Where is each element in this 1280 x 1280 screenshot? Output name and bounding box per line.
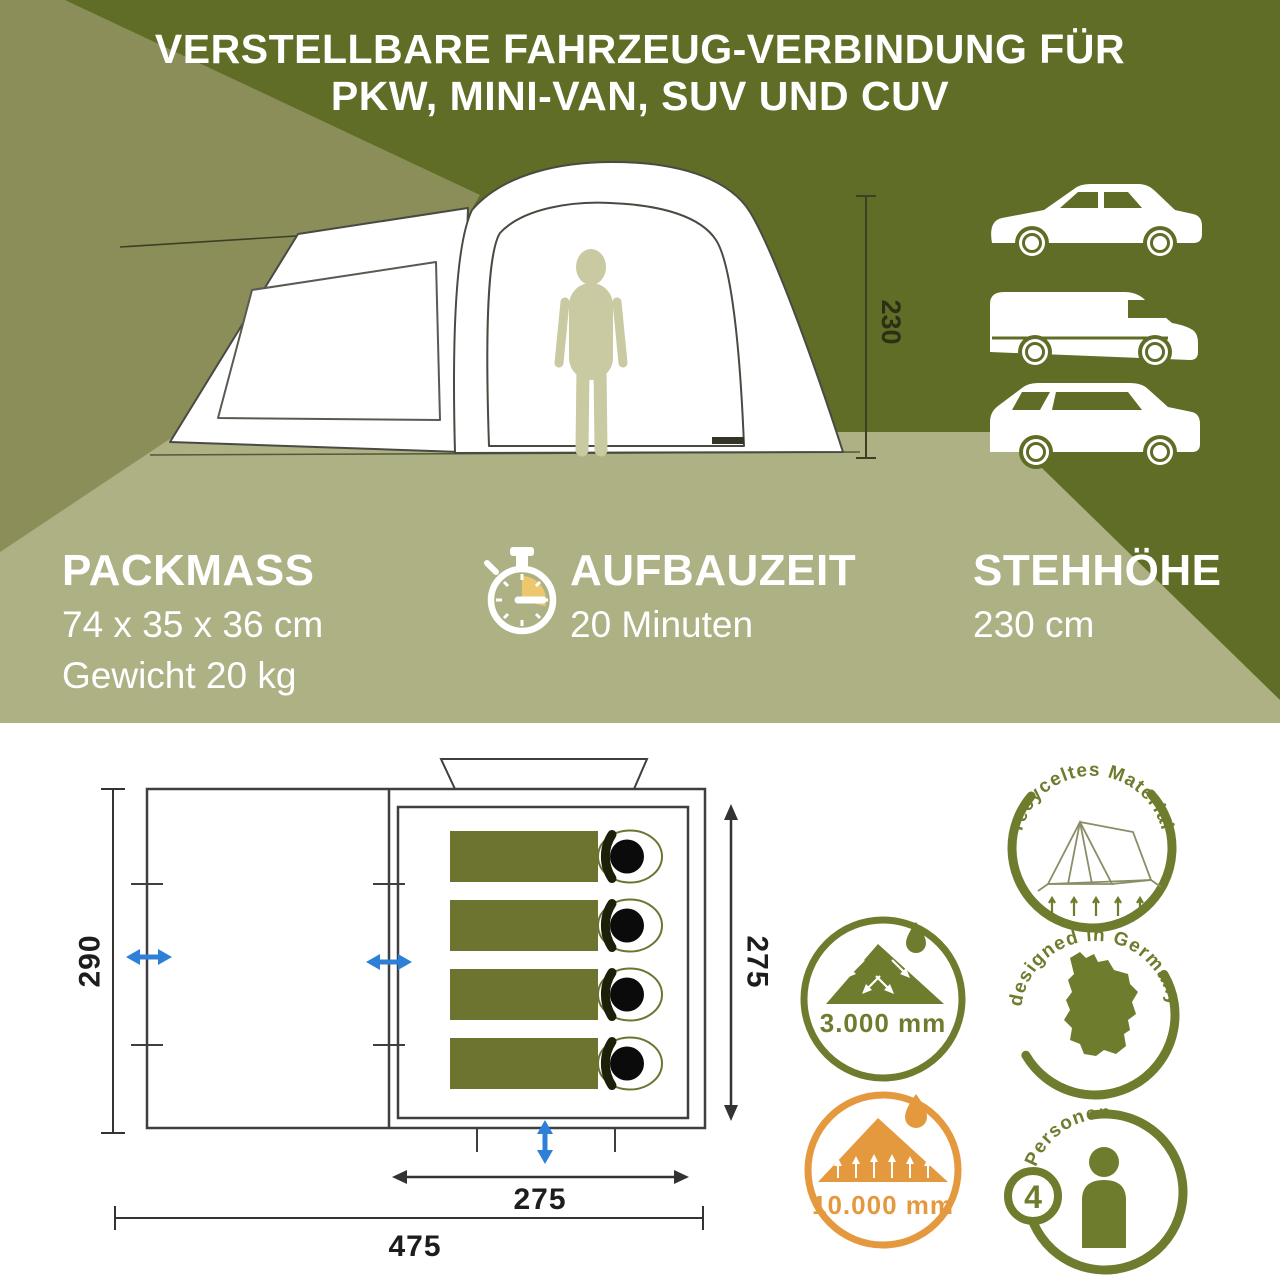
height-dimension-label: 230 bbox=[876, 299, 906, 344]
car-icon bbox=[991, 184, 1202, 260]
page-title-line1: VERSTELLBARE FAHRZEUG-VERBINDUNG FÜR bbox=[0, 26, 1280, 72]
tent-door-sill bbox=[712, 437, 744, 444]
badge-waterproof-3000: 3.000 mm bbox=[804, 920, 962, 1078]
suv-icon bbox=[990, 383, 1200, 469]
height-dimension-line bbox=[856, 196, 876, 458]
vehicle-tunnel-shape bbox=[441, 759, 647, 789]
floor-plan: 290 275 275 475 bbox=[74, 759, 774, 1263]
door-arrow-bottom bbox=[537, 1120, 553, 1164]
aufbauzeit-heading: AUFBAUZEIT bbox=[570, 549, 856, 593]
badge-recycled-label: recyceltes Material bbox=[1006, 760, 1177, 833]
badge-rain-value: 3.000 mm bbox=[820, 1008, 947, 1038]
aufbauzeit-value: 20 Minuten bbox=[570, 604, 753, 646]
svg-text:recyceltes Material: recyceltes Material bbox=[1006, 760, 1177, 833]
sleeping-bag bbox=[450, 969, 662, 1021]
badge-persons: Personen 4 bbox=[1008, 1102, 1193, 1280]
stehhoehe-heading: STEHHÖHE bbox=[973, 549, 1221, 593]
badge-floor-value: 10.000 mm bbox=[812, 1190, 954, 1220]
dim-label-275-bottom: 275 bbox=[513, 1183, 566, 1216]
badge-designed-in-germany: designed in Germany bbox=[986, 906, 1205, 1125]
packmass-dimensions: 74 x 35 x 36 cm bbox=[62, 604, 323, 646]
dim-line-475 bbox=[115, 1206, 703, 1230]
tent-stakes-icon bbox=[1049, 898, 1143, 916]
badge-waterproof-floor-10000: 10.000 mm bbox=[808, 1094, 958, 1245]
stehhoehe-value: 230 cm bbox=[973, 604, 1094, 646]
page-title-line2: PKW, MINI-VAN, SUV UND CUV bbox=[0, 73, 1280, 119]
packmass-heading: PACKMASS bbox=[62, 549, 315, 593]
packmass-weight: Gewicht 20 kg bbox=[62, 655, 296, 697]
dim-line-275-bottom bbox=[392, 1170, 689, 1184]
hero-section: 230 bbox=[0, 0, 1280, 723]
floorplan-artwork: 290 275 275 475 bbox=[0, 723, 1280, 1280]
sleeping-bags bbox=[450, 831, 662, 1090]
sleeping-bag bbox=[450, 831, 662, 883]
van-icon bbox=[990, 292, 1198, 369]
sleeping-bag bbox=[450, 900, 662, 952]
mountain-icon bbox=[826, 944, 944, 1004]
dim-line-275-right bbox=[724, 804, 738, 1121]
door-arrow-left bbox=[126, 949, 172, 965]
person-icon bbox=[1082, 1147, 1126, 1248]
sleeping-bag bbox=[450, 1038, 662, 1090]
floorplan-section: 290 275 275 475 bbox=[0, 723, 1280, 1280]
dim-label-275-right: 275 bbox=[741, 935, 774, 988]
tent-line-icon bbox=[1038, 822, 1161, 891]
vehicle-icons bbox=[990, 184, 1202, 469]
persons-count: 4 bbox=[1024, 1179, 1042, 1215]
germany-map-icon bbox=[1064, 952, 1138, 1056]
dim-label-290: 290 bbox=[74, 934, 107, 987]
dim-label-475: 475 bbox=[388, 1230, 441, 1263]
